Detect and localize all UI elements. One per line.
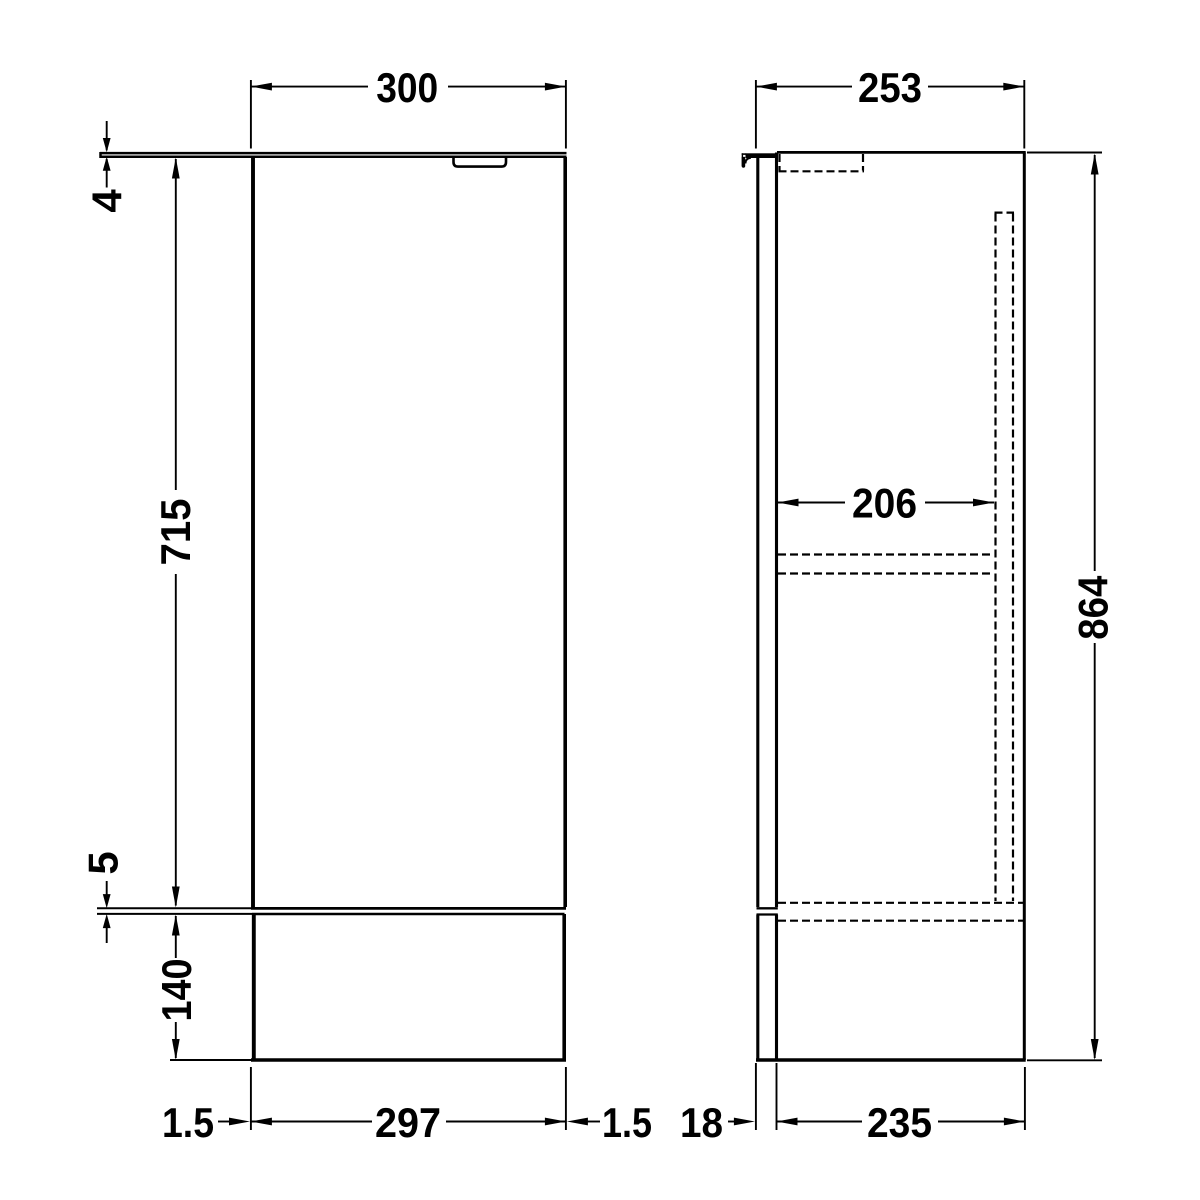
svg-text:1.5: 1.5 — [602, 1099, 652, 1146]
svg-text:140: 140 — [153, 959, 200, 1022]
svg-text:206: 206 — [852, 480, 917, 527]
svg-text:18: 18 — [680, 1099, 723, 1146]
svg-text:4: 4 — [84, 189, 131, 213]
svg-text:1.5: 1.5 — [162, 1099, 214, 1146]
svg-text:297: 297 — [375, 1099, 441, 1146]
svg-text:235: 235 — [867, 1099, 932, 1146]
svg-text:5: 5 — [80, 851, 127, 874]
svg-text:300: 300 — [376, 64, 438, 111]
svg-text:253: 253 — [858, 64, 922, 111]
svg-text:864: 864 — [1070, 575, 1117, 640]
svg-text:715: 715 — [152, 499, 199, 566]
